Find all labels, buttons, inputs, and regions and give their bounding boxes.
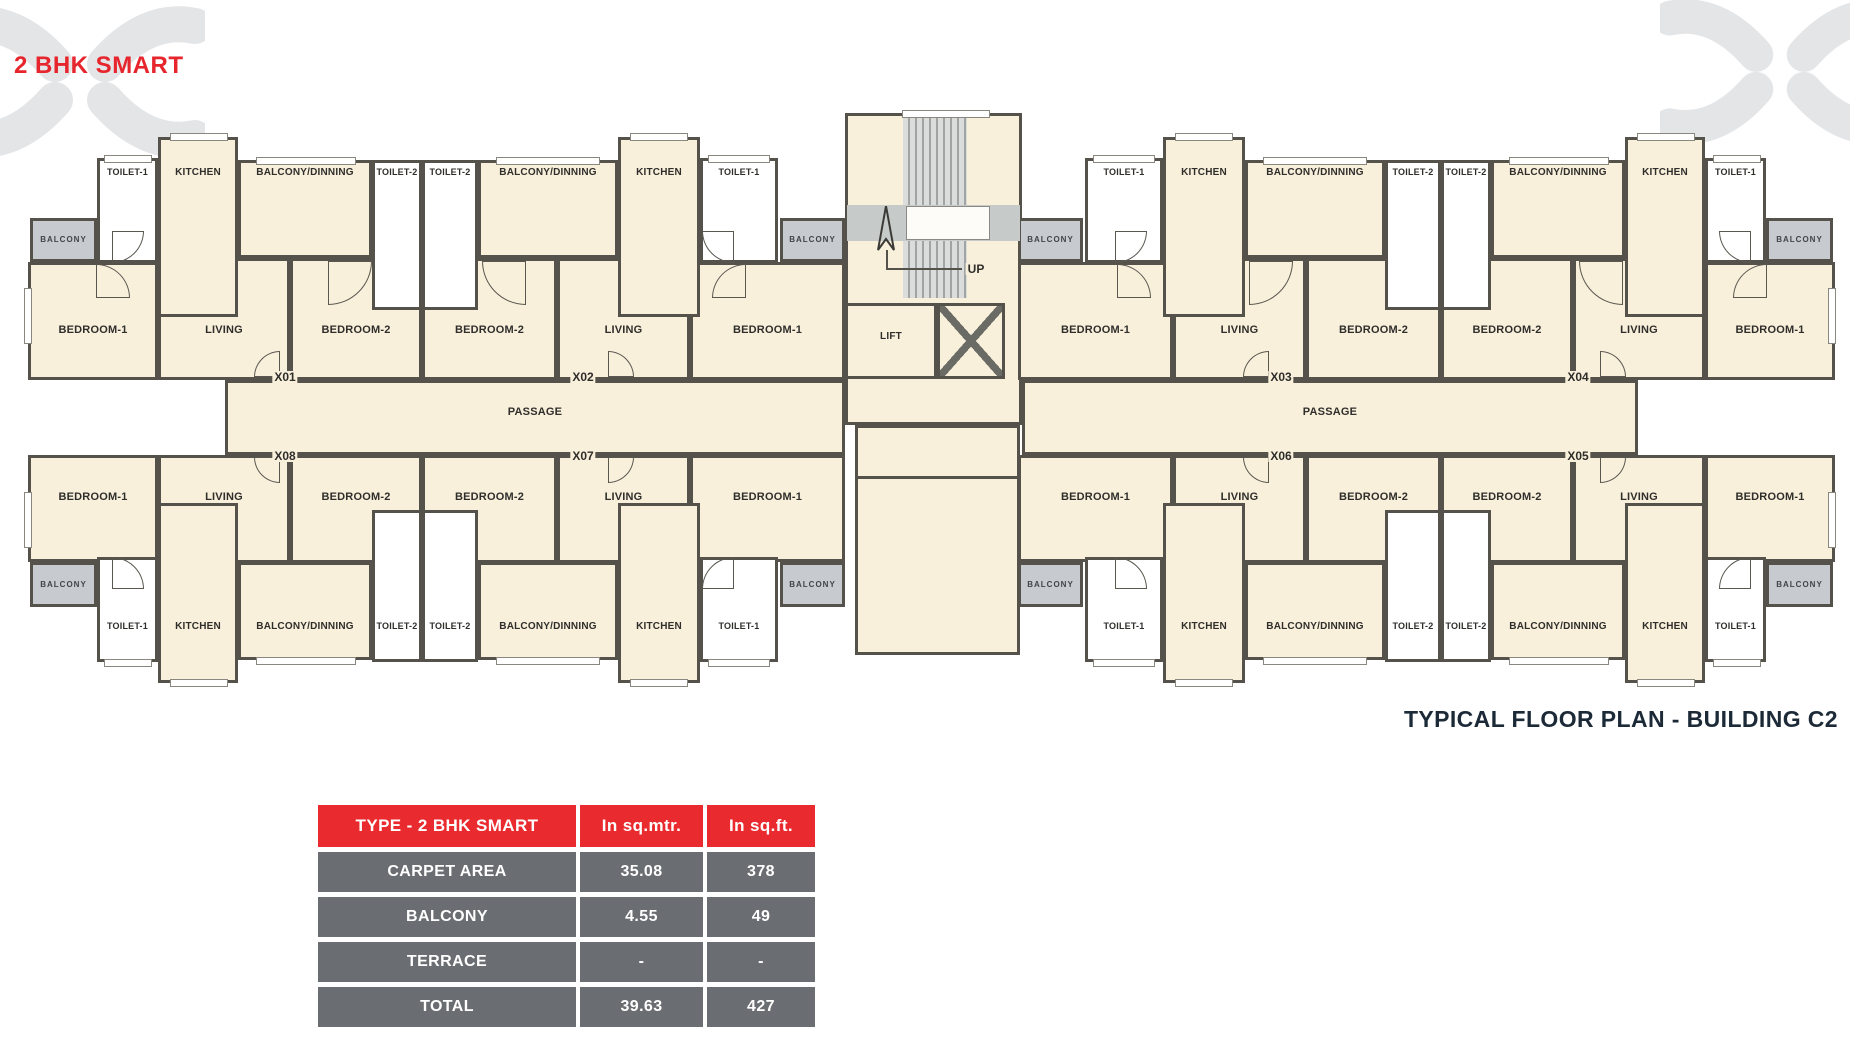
window-mark (1175, 679, 1233, 687)
balcony-x08-bot-label: BALCONY (40, 580, 87, 590)
kitchen-x07-bot (618, 503, 700, 683)
bedroom1-x04-top (1705, 262, 1835, 380)
balcdin-x08-bot (238, 562, 372, 660)
area-table: TYPE - 2 BHK SMARTIn sq.mtr.In sq.ft.CAR… (318, 805, 815, 1032)
bedroom1-x07-bot-label: BEDROOM-1 (733, 491, 802, 504)
unit-tag-x06: X06 (1268, 450, 1293, 462)
plan-type-badge: 2 BHK SMART (14, 52, 184, 80)
bedroom2-x06-bot-label: BEDROOM-2 (1339, 491, 1408, 504)
toilet2-x05-bot (1441, 510, 1491, 662)
window-mark (496, 657, 600, 665)
bedroom1-x07-bot (690, 455, 845, 562)
window-mark (630, 679, 688, 687)
bedroom1-x05-bot-label: BEDROOM-1 (1735, 491, 1804, 504)
passage-left-label: PASSAGE (508, 406, 562, 419)
unit-tag-x08: X08 (272, 450, 297, 462)
window-mark (496, 157, 600, 165)
unit-tag-x02: X02 (570, 371, 595, 383)
window-mark (1828, 288, 1836, 344)
balcdin-x05-bot (1491, 562, 1625, 660)
kitchen-x07-bot-label: KITCHEN (636, 621, 682, 633)
table-header-row: TYPE - 2 BHK SMARTIn sq.mtr.In sq.ft. (318, 805, 815, 847)
window-mark (170, 133, 228, 141)
window-mark (170, 679, 228, 687)
table-row: TOTAL39.63427 (318, 987, 815, 1027)
table-cell: TERRACE (318, 942, 576, 982)
window-mark (1713, 155, 1761, 163)
kitchen-x01-top-label: KITCHEN (175, 167, 221, 179)
unit-tag-x03: X03 (1268, 371, 1293, 383)
balcdin-x01-top-label: BALCONY/DINNING (256, 167, 353, 179)
toilet1-x02-top-label: TOILET-1 (719, 167, 760, 178)
toilet1-x08-bot-label: TOILET-1 (107, 621, 148, 632)
toilet1-x06-bot-label: TOILET-1 (1104, 621, 1145, 632)
table-cell: TOTAL (318, 987, 576, 1027)
window-mark (24, 492, 32, 548)
toilet2-x08-bot-label: TOILET-2 (377, 621, 418, 632)
balcdin-x03-top-label: BALCONY/DINNING (1266, 167, 1363, 179)
bedroom2-x04-top-label: BEDROOM-2 (1472, 324, 1541, 337)
plan-line (886, 250, 888, 270)
table-cell: 35.08 (580, 852, 703, 892)
plan-line (886, 268, 962, 270)
stair-landing (906, 206, 990, 240)
kitchen-x02-top (618, 137, 700, 317)
window-mark (1509, 157, 1609, 165)
toilet2-x07-bot-label: TOILET-2 (430, 621, 471, 632)
unit-tag-x04: X04 (1565, 371, 1590, 383)
balcony-x06-bot-label: BALCONY (1027, 580, 1074, 590)
kitchen-x08-bot-label: KITCHEN (175, 621, 221, 633)
window-mark (1713, 659, 1761, 667)
toilet2-x07-bot (422, 510, 478, 662)
up-label: UP (966, 263, 987, 275)
plan-title: TYPICAL FLOOR PLAN - BUILDING C2 (1404, 706, 1838, 733)
toilet1-x07-bot-label: TOILET-1 (719, 621, 760, 632)
living-x08-bot-label: LIVING (205, 491, 243, 504)
kitchen-x06-bot (1163, 503, 1245, 683)
table-header-cell: In sq.mtr. (580, 805, 703, 847)
living-x01-top-label: LIVING (205, 324, 243, 337)
window-mark (104, 155, 152, 163)
bedroom1-x04-top-label: BEDROOM-1 (1735, 324, 1804, 337)
balcony-x02-top-label: BALCONY (789, 235, 836, 245)
table-cell: BALCONY (318, 897, 576, 937)
floor-plan: PASSAGEPASSAGEBEDROOM-1LIVINGBEDROOM-2BE… (0, 0, 1850, 1041)
toilet1-x03-top-label: TOILET-1 (1104, 167, 1145, 178)
toilet2-x04-top (1441, 160, 1491, 310)
bedroom1-x06-bot (1018, 455, 1173, 562)
bedroom2-x07-bot-label: BEDROOM-2 (455, 491, 524, 504)
balcdin-x08-bot-label: BALCONY/DINNING (256, 621, 353, 633)
balcdin-x02-top-label: BALCONY/DINNING (499, 167, 596, 179)
toilet2-x06-bot-label: TOILET-2 (1393, 621, 1434, 632)
window-mark (1093, 659, 1155, 667)
table-cell: 427 (707, 987, 815, 1027)
toilet2-x04-top-label: TOILET-2 (1446, 167, 1487, 178)
bedroom1-x01-top (28, 262, 158, 380)
table-row: BALCONY4.5549 (318, 897, 815, 937)
table-header-cell: In sq.ft. (707, 805, 815, 847)
kitchen-x06-bot-label: KITCHEN (1181, 621, 1227, 633)
toilet2-x01-top-label: TOILET-2 (377, 167, 418, 178)
bedroom2-x05-bot-label: BEDROOM-2 (1472, 491, 1541, 504)
bedroom1-x02-top (690, 262, 845, 380)
table-cell: 378 (707, 852, 815, 892)
balcdin-x07-bot (478, 562, 618, 660)
window-mark (902, 110, 990, 118)
balcony-x05-bot-label: BALCONY (1776, 580, 1823, 590)
window-mark (708, 155, 770, 163)
window-mark (256, 657, 356, 665)
living-x04-top-label: LIVING (1620, 324, 1658, 337)
passage-right-label: PASSAGE (1303, 406, 1357, 419)
toilet1-x01-top-label: TOILET-1 (107, 167, 148, 178)
window-mark (1828, 492, 1836, 548)
toilet2-x06-bot (1385, 510, 1441, 662)
balcdin-x05-bot-label: BALCONY/DINNING (1509, 621, 1606, 633)
kitchen-x02-top-label: KITCHEN (636, 167, 682, 179)
living-x06-bot-label: LIVING (1221, 491, 1259, 504)
kitchen-x04-top (1625, 137, 1705, 317)
balcdin-x07-bot-label: BALCONY/DINNING (499, 621, 596, 633)
window-mark (1509, 657, 1609, 665)
plan-line (857, 476, 1018, 479)
window-mark (24, 288, 32, 344)
table-cell: - (707, 942, 815, 982)
toilet1-x05-bot-label: TOILET-1 (1715, 621, 1756, 632)
window-mark (256, 157, 356, 165)
lift-label: LIFT (880, 331, 902, 343)
window-mark (1093, 155, 1155, 163)
window-mark (1263, 657, 1367, 665)
table-header-cell: TYPE - 2 BHK SMART (318, 805, 576, 847)
table-cell: - (580, 942, 703, 982)
toilet2-x02-top (422, 160, 478, 310)
window-mark (708, 659, 770, 667)
bedroom2-x02-top-label: BEDROOM-2 (455, 324, 524, 337)
toilet2-x01-top (372, 160, 422, 310)
balcony-x01-top-label: BALCONY (40, 235, 87, 245)
toilet2-x03-top-label: TOILET-2 (1393, 167, 1434, 178)
toilet2-x08-bot (372, 510, 422, 662)
bedroom2-x01-top-label: BEDROOM-2 (321, 324, 390, 337)
kitchen-x03-top (1163, 137, 1245, 317)
table-cell: 39.63 (580, 987, 703, 1027)
balcdin-x06-bot (1245, 562, 1385, 660)
window-mark (1175, 133, 1233, 141)
living-x03-top-label: LIVING (1221, 324, 1259, 337)
window-mark (1263, 157, 1367, 165)
bedroom1-x08-bot (28, 455, 158, 562)
table-cell: 4.55 (580, 897, 703, 937)
core-bottom (855, 425, 1020, 655)
table-row: TERRACE-- (318, 942, 815, 982)
table-row: CARPET AREA35.08378 (318, 852, 815, 892)
stair-shaft (937, 303, 1005, 379)
window-mark (1637, 133, 1695, 141)
kitchen-x01-top (158, 137, 238, 317)
bedroom2-x08-bot-label: BEDROOM-2 (321, 491, 390, 504)
bedroom2-x03-top-label: BEDROOM-2 (1339, 324, 1408, 337)
kitchen-x05-bot (1625, 503, 1705, 683)
kitchen-x05-bot-label: KITCHEN (1642, 621, 1688, 633)
unit-tag-x07: X07 (570, 450, 595, 462)
living-x05-bot-label: LIVING (1620, 491, 1658, 504)
living-x07-bot-label: LIVING (605, 491, 643, 504)
unit-tag-x05: X05 (1565, 450, 1590, 462)
bedroom1-x01-top-label: BEDROOM-1 (58, 324, 127, 337)
toilet2-x05-bot-label: TOILET-2 (1446, 621, 1487, 632)
balcony-x03-top-label: BALCONY (1027, 235, 1074, 245)
toilet1-x04-top-label: TOILET-1 (1715, 167, 1756, 178)
bedroom1-x05-bot (1705, 455, 1835, 562)
unit-tag-x01: X01 (272, 371, 297, 383)
bedroom1-x06-bot-label: BEDROOM-1 (1061, 491, 1130, 504)
bedroom1-x03-top-label: BEDROOM-1 (1061, 324, 1130, 337)
table-cell: CARPET AREA (318, 852, 576, 892)
kitchen-x08-bot (158, 503, 238, 683)
bedroom1-x08-bot-label: BEDROOM-1 (58, 491, 127, 504)
north-arrow-icon (877, 206, 895, 252)
window-mark (630, 133, 688, 141)
toilet2-x02-top-label: TOILET-2 (430, 167, 471, 178)
balcony-x04-top-label: BALCONY (1776, 235, 1823, 245)
bedroom1-x02-top-label: BEDROOM-1 (733, 324, 802, 337)
balcony-x07-bot-label: BALCONY (789, 580, 836, 590)
kitchen-x04-top-label: KITCHEN (1642, 167, 1688, 179)
window-mark (104, 659, 152, 667)
toilet2-x03-top (1385, 160, 1441, 310)
living-x02-top-label: LIVING (605, 324, 643, 337)
window-mark (1637, 679, 1695, 687)
kitchen-x03-top-label: KITCHEN (1181, 167, 1227, 179)
table-cell: 49 (707, 897, 815, 937)
balcdin-x06-bot-label: BALCONY/DINNING (1266, 621, 1363, 633)
balcdin-x04-top-label: BALCONY/DINNING (1509, 167, 1606, 179)
bedroom1-x03-top (1018, 262, 1173, 380)
